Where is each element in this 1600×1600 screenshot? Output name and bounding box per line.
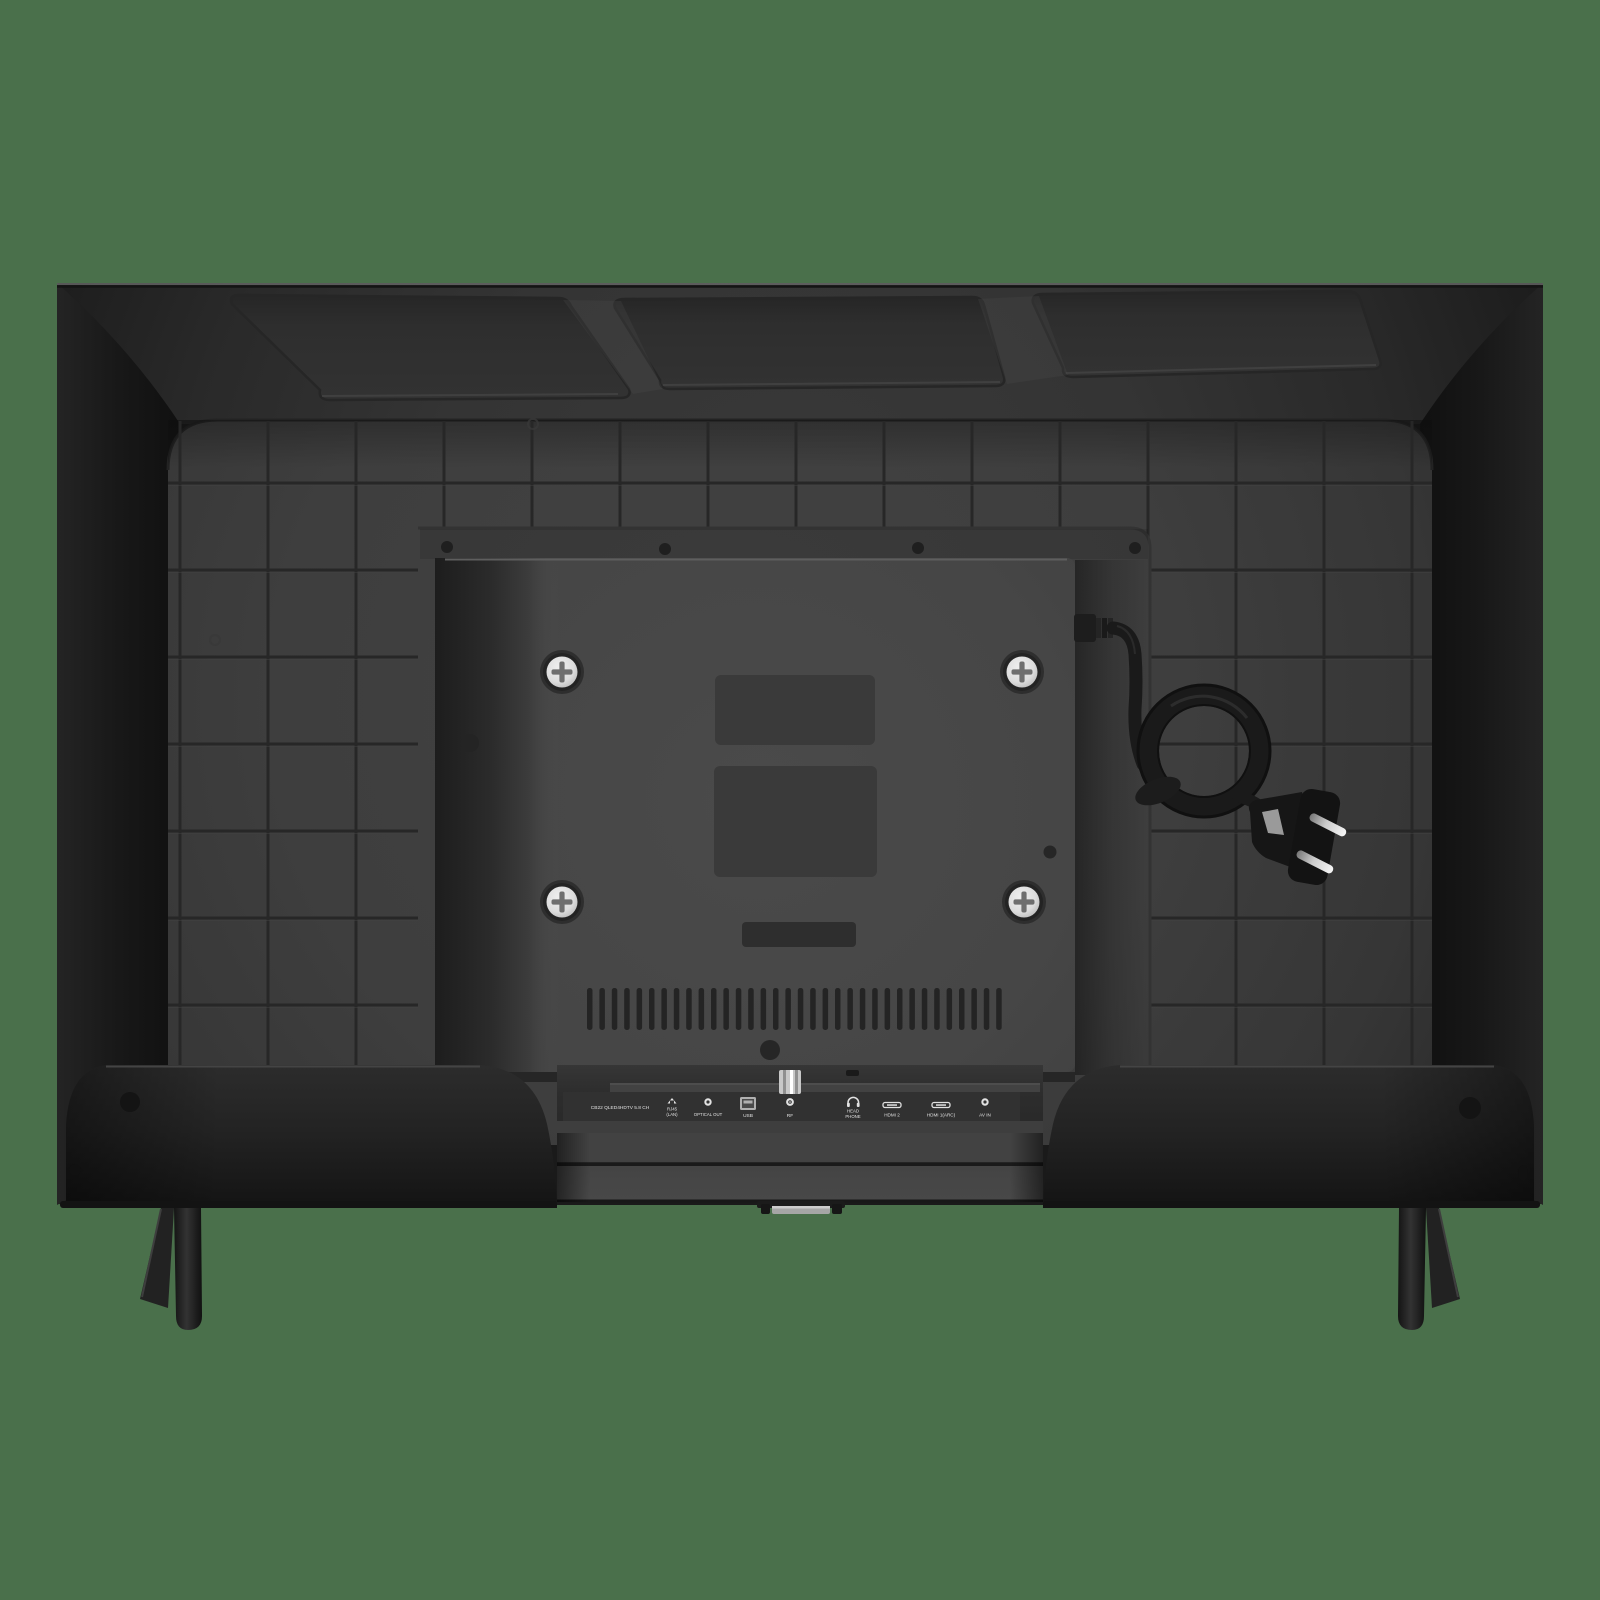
- svg-text:RJ45: RJ45: [667, 1107, 678, 1112]
- svg-text:USB: USB: [743, 1113, 753, 1119]
- svg-text:HDMI 1(ARC): HDMI 1(ARC): [927, 1113, 956, 1118]
- svg-text:OPTICAL OUT: OPTICAL OUT: [694, 1112, 723, 1117]
- svg-text:AV IN: AV IN: [979, 1113, 991, 1118]
- svg-text:(LAN): (LAN): [666, 1112, 678, 1117]
- svg-text:HEAD: HEAD: [847, 1109, 859, 1114]
- svg-text:PHONE: PHONE: [845, 1114, 860, 1119]
- svg-text:CB22 QLED4HDTV 5.8 CH: CB22 QLED4HDTV 5.8 CH: [591, 1105, 650, 1111]
- svg-text:HDMI 2: HDMI 2: [884, 1113, 900, 1118]
- svg-text:RF: RF: [787, 1113, 793, 1119]
